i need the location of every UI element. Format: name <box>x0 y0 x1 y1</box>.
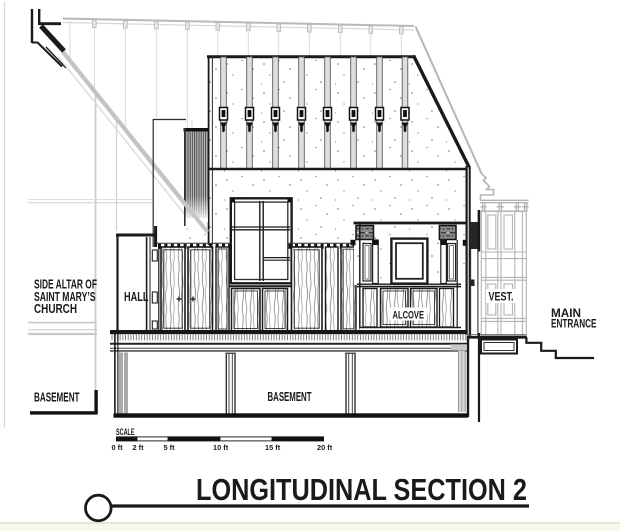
svg-text:BASEMENT: BASEMENT <box>268 390 312 404</box>
svg-text:20 ft: 20 ft <box>317 443 333 452</box>
svg-text:SCALE: SCALE <box>116 426 135 437</box>
svg-text:5 ft: 5 ft <box>164 443 176 452</box>
svg-text:VEST.: VEST. <box>489 290 514 304</box>
svg-text:15 ft: 15 ft <box>265 443 281 452</box>
svg-text:HALL: HALL <box>124 290 149 304</box>
svg-text:0 ft: 0 ft <box>112 443 124 452</box>
svg-text:10 ft: 10 ft <box>213 443 229 452</box>
svg-text:LONGITUDINAL SECTION 2: LONGITUDINAL SECTION 2 <box>196 473 527 507</box>
svg-text:ENTRANCE: ENTRANCE <box>551 317 597 331</box>
svg-text:ALCOVE: ALCOVE <box>393 310 425 322</box>
svg-text:CHURCH: CHURCH <box>34 302 77 316</box>
svg-text:BASEMENT: BASEMENT <box>34 391 80 405</box>
svg-text:2 ft: 2 ft <box>133 443 145 452</box>
